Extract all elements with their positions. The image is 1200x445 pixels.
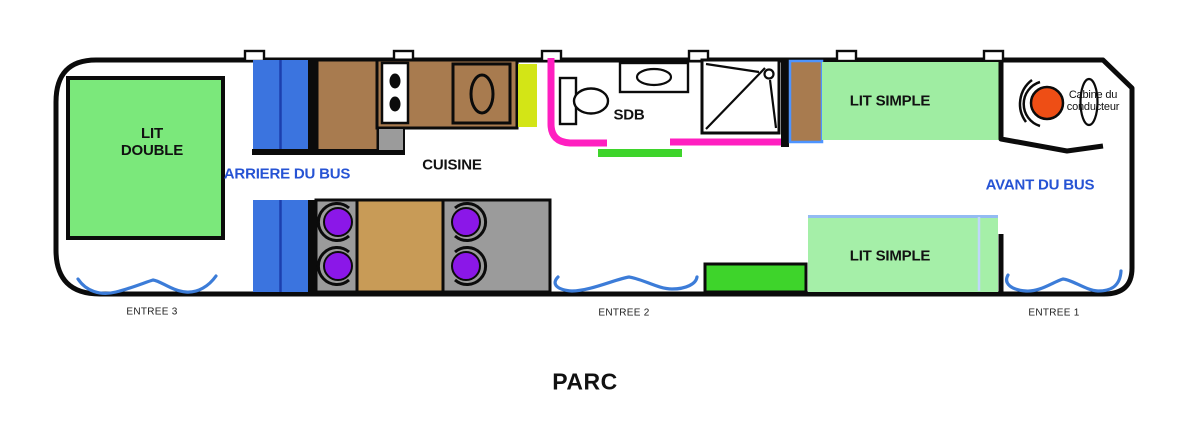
rear-lower-cabinets [253,200,316,292]
label-single-bed-top: LIT SIMPLE [850,94,931,111]
label-single-bed-bottom: LIT SIMPLE [850,249,931,266]
bathroom-right-wall [781,58,789,147]
toilet-icon [574,89,608,114]
step-block [705,264,806,292]
dinette [316,200,550,292]
stove-burner [390,74,401,89]
label-front-of-bus: AVANT DU BUS [986,178,1095,195]
label-kitchen: CUISINE [422,158,481,175]
roof-vent-icon [837,51,856,61]
label-entrance-1: ENTREE 1 [1028,308,1079,319]
roof-vent-icon [984,51,1003,61]
kitchen-cabinet [317,60,378,151]
label-entrance-3: ENTREE 3 [126,307,177,318]
steering-wheel-icon [1031,87,1063,119]
kitchen-gray-unit [378,128,404,151]
bus-floorplan: LIT DOUBLE ARRIERE DU BUS CUISINE SDB LI… [0,0,1200,445]
rear-upper-cabinets [253,60,317,151]
roof-vent-icon [245,51,264,61]
page-title: PARC [552,369,617,396]
label-double-bed: LIT DOUBLE [121,126,183,160]
door-mat [598,149,682,157]
washbasin-unit [620,63,688,92]
label-rear-of-bus: ARRIERE DU BUS [224,167,350,184]
wardrobe [790,61,822,142]
stove-icon [382,63,408,123]
dinette-table [357,200,443,292]
stove-burner [390,97,401,112]
dinette-seat-icon [324,208,352,236]
dinette-seat-icon [452,208,480,236]
shower-head [765,70,774,79]
label-driver-cab: Cabine du conducteur [1067,89,1119,113]
label-entrance-2: ENTREE 2 [598,308,649,319]
dinette-seat-icon [452,252,480,280]
dinette-seat-icon [324,252,352,280]
worktop [518,64,537,127]
label-bathroom: SDB [613,108,644,125]
